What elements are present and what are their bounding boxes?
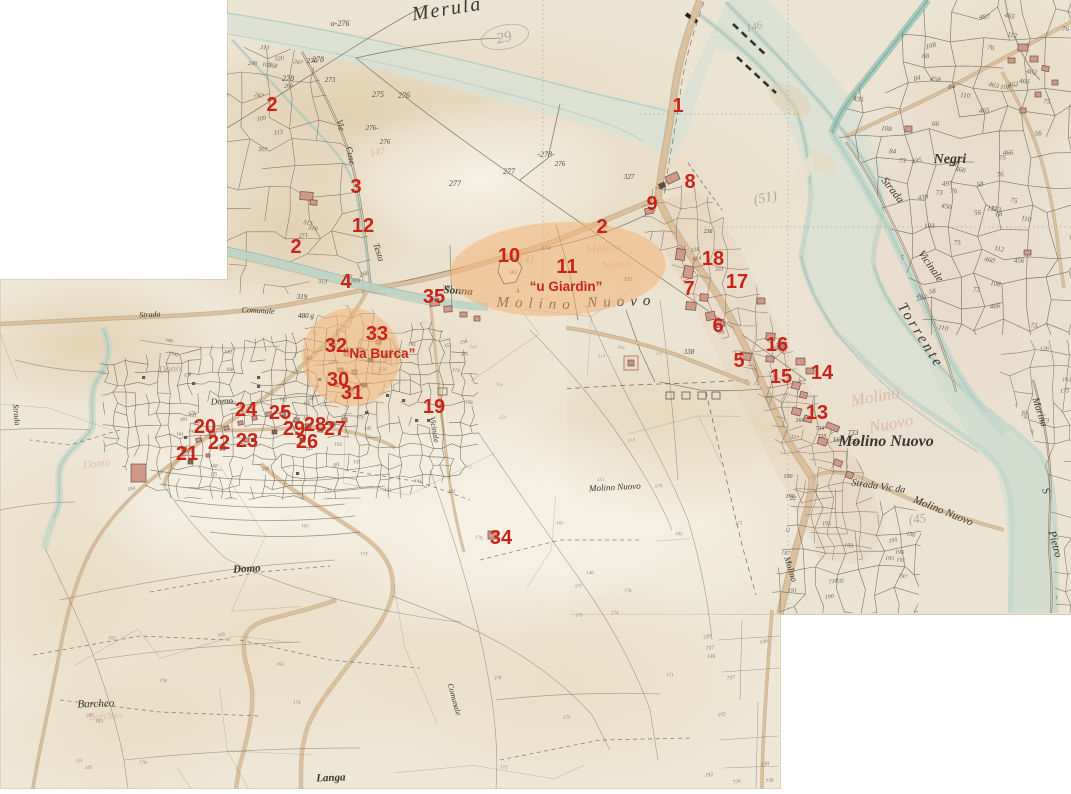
- svg-text:1: 1: [672, 95, 683, 117]
- svg-text:Negri: Negri: [933, 152, 967, 167]
- svg-text:173: 173: [563, 715, 571, 721]
- svg-text:195: 195: [822, 521, 831, 527]
- svg-text:18: 18: [702, 248, 724, 270]
- svg-text:266: 266: [283, 82, 294, 90]
- svg-text:142: 142: [364, 426, 372, 432]
- svg-text:277: 277: [449, 179, 462, 188]
- svg-text:Dono: Dono: [157, 363, 181, 376]
- svg-text:273: 273: [325, 76, 336, 84]
- svg-text:16: 16: [766, 334, 788, 356]
- svg-text:183: 183: [108, 636, 117, 642]
- svg-text:174: 174: [293, 701, 301, 706]
- svg-text:276: 276: [555, 160, 566, 168]
- svg-text:109: 109: [262, 61, 272, 69]
- svg-text:319: 319: [296, 293, 308, 301]
- svg-text:142: 142: [448, 490, 456, 495]
- svg-text:737: 737: [726, 675, 735, 682]
- svg-text:15: 15: [770, 366, 792, 388]
- svg-text:126: 126: [1040, 346, 1049, 353]
- svg-text:151: 151: [444, 344, 452, 349]
- svg-text:190: 190: [784, 474, 793, 480]
- svg-text:12: 12: [352, 215, 374, 237]
- svg-text:76: 76: [950, 187, 958, 195]
- svg-text:466: 466: [1003, 148, 1014, 157]
- svg-text:456: 456: [941, 202, 953, 211]
- svg-text:276: 276: [307, 57, 318, 65]
- svg-text:23: 23: [236, 430, 258, 452]
- svg-text:318: 318: [628, 438, 637, 444]
- svg-text:324: 324: [499, 416, 507, 421]
- svg-text:193: 193: [844, 543, 853, 549]
- svg-text:3: 3: [350, 176, 361, 198]
- svg-text:466: 466: [989, 301, 1001, 311]
- svg-text:276: 276: [380, 138, 391, 146]
- svg-text:480 g: 480 g: [298, 312, 314, 320]
- svg-text:171: 171: [666, 673, 674, 678]
- svg-text:185: 185: [675, 532, 683, 537]
- svg-text:Barcheo: Barcheo: [77, 697, 115, 710]
- svg-text:173: 173: [324, 489, 332, 494]
- svg-text:277: 277: [503, 167, 516, 176]
- svg-text:196: 196: [895, 550, 904, 556]
- svg-text:327: 327: [623, 173, 635, 181]
- svg-text:112: 112: [987, 204, 998, 213]
- svg-text:735: 735: [818, 434, 827, 440]
- svg-text:Strada: Strada: [11, 404, 22, 426]
- svg-text:(45: (45: [908, 510, 928, 527]
- svg-text:33: 33: [366, 323, 388, 345]
- svg-text:108: 108: [881, 124, 893, 133]
- svg-text:Comunale: Comunale: [241, 305, 275, 316]
- svg-text:13: 13: [806, 402, 828, 424]
- svg-text:185: 185: [85, 765, 93, 771]
- svg-text:190: 190: [786, 494, 795, 500]
- svg-text:551: 551: [677, 245, 686, 252]
- svg-text:181: 181: [180, 417, 188, 423]
- svg-text:151: 151: [353, 460, 361, 466]
- svg-text:313: 313: [317, 278, 328, 285]
- svg-text:Domo: Domo: [232, 562, 262, 576]
- svg-text:138: 138: [760, 761, 769, 768]
- svg-text:2: 2: [596, 216, 607, 238]
- svg-text:141: 141: [461, 352, 469, 358]
- svg-text:165: 165: [301, 524, 309, 529]
- svg-text:178: 178: [159, 679, 167, 684]
- svg-text:Molino Nuovo: Molino Nuovo: [837, 433, 934, 450]
- svg-text:173: 173: [735, 521, 743, 527]
- svg-text:148: 148: [586, 571, 594, 576]
- svg-text:5: 5: [733, 350, 744, 372]
- svg-text:275: 275: [372, 90, 384, 99]
- svg-text:314: 314: [598, 354, 607, 360]
- svg-text:456: 456: [1014, 256, 1025, 265]
- svg-text:73: 73: [899, 157, 907, 165]
- svg-text:7: 7: [683, 278, 694, 300]
- svg-text:Strada: Strada: [139, 309, 161, 319]
- svg-text:249: 249: [248, 60, 258, 67]
- svg-text:181: 181: [556, 521, 564, 527]
- svg-text:24: 24: [235, 399, 258, 421]
- svg-text:191: 191: [788, 588, 797, 594]
- svg-text:Barcheo: Barcheo: [89, 710, 123, 723]
- svg-text:11: 11: [556, 256, 577, 278]
- svg-text:109: 109: [256, 115, 266, 123]
- svg-text:Domo: Domo: [209, 395, 233, 407]
- svg-text:17: 17: [726, 271, 748, 293]
- svg-text:110: 110: [960, 91, 971, 100]
- svg-text:192: 192: [704, 772, 713, 779]
- svg-text:143: 143: [224, 350, 233, 356]
- svg-text:19: 19: [423, 396, 445, 418]
- svg-text:174: 174: [611, 611, 619, 616]
- svg-text:462: 462: [916, 292, 928, 301]
- svg-text:56: 56: [974, 209, 982, 217]
- svg-text:458: 458: [930, 75, 942, 84]
- svg-text:108: 108: [990, 279, 1002, 289]
- svg-text:Langa: Langa: [315, 771, 346, 784]
- svg-text:462: 462: [1007, 80, 1019, 89]
- svg-text:6: 6: [712, 315, 723, 337]
- svg-text:14: 14: [811, 362, 834, 384]
- svg-text:22: 22: [208, 432, 230, 454]
- svg-text:465: 465: [979, 106, 991, 115]
- svg-text:175: 175: [210, 472, 218, 478]
- svg-text:168: 168: [226, 368, 234, 373]
- svg-text:35: 35: [423, 286, 445, 308]
- svg-text:31: 31: [341, 382, 363, 404]
- svg-text:156: 156: [303, 401, 311, 407]
- svg-text:8: 8: [684, 171, 695, 193]
- svg-text:68: 68: [922, 52, 930, 60]
- svg-text:173: 173: [1060, 388, 1069, 395]
- svg-text:190: 190: [824, 594, 834, 601]
- svg-text:278: 278: [282, 74, 294, 83]
- svg-text:466: 466: [1019, 77, 1031, 86]
- svg-text:103: 103: [1062, 377, 1071, 383]
- svg-text:2: 2: [290, 236, 301, 258]
- svg-text:“Na Burca”: “Na Burca”: [343, 346, 416, 361]
- svg-text:173: 173: [360, 552, 368, 557]
- svg-text:“u Giardìn”: “u Giardìn”: [530, 279, 603, 294]
- svg-text:151: 151: [384, 488, 392, 493]
- svg-text:238: 238: [704, 229, 713, 235]
- svg-text:76: 76: [1062, 25, 1070, 33]
- svg-text:103: 103: [924, 222, 935, 230]
- svg-text:75: 75: [953, 238, 961, 247]
- svg-text:311: 311: [465, 465, 473, 471]
- svg-text:73: 73: [935, 188, 943, 197]
- svg-text:307: 307: [257, 146, 269, 154]
- svg-text:497: 497: [979, 13, 990, 21]
- svg-text:73: 73: [973, 286, 981, 294]
- svg-text:439: 439: [917, 193, 929, 202]
- svg-text:o-276: o-276: [331, 19, 350, 28]
- svg-text:2: 2: [266, 94, 277, 116]
- svg-text:276-: 276-: [366, 124, 380, 132]
- svg-text:276: 276: [398, 91, 410, 100]
- svg-text:27: 27: [324, 418, 346, 440]
- svg-text:84: 84: [948, 83, 956, 91]
- svg-text:338: 338: [683, 348, 695, 356]
- svg-text:160: 160: [796, 418, 805, 424]
- svg-text:21: 21: [176, 443, 198, 465]
- svg-text:34: 34: [490, 527, 513, 549]
- svg-text:9: 9: [646, 193, 657, 215]
- svg-text:66: 66: [932, 120, 940, 128]
- svg-text:195: 195: [885, 556, 894, 562]
- svg-text:26: 26: [296, 431, 318, 453]
- svg-text:318: 318: [655, 352, 663, 357]
- svg-text:318: 318: [469, 345, 477, 351]
- svg-text:-278-: -278-: [537, 150, 555, 159]
- svg-text:4: 4: [340, 271, 352, 293]
- svg-text:734: 734: [816, 425, 825, 432]
- svg-text:168: 168: [210, 464, 218, 470]
- svg-text:173: 173: [575, 613, 583, 619]
- svg-text:737: 737: [705, 645, 714, 652]
- svg-text:10: 10: [498, 245, 520, 267]
- svg-text:146: 146: [707, 653, 716, 660]
